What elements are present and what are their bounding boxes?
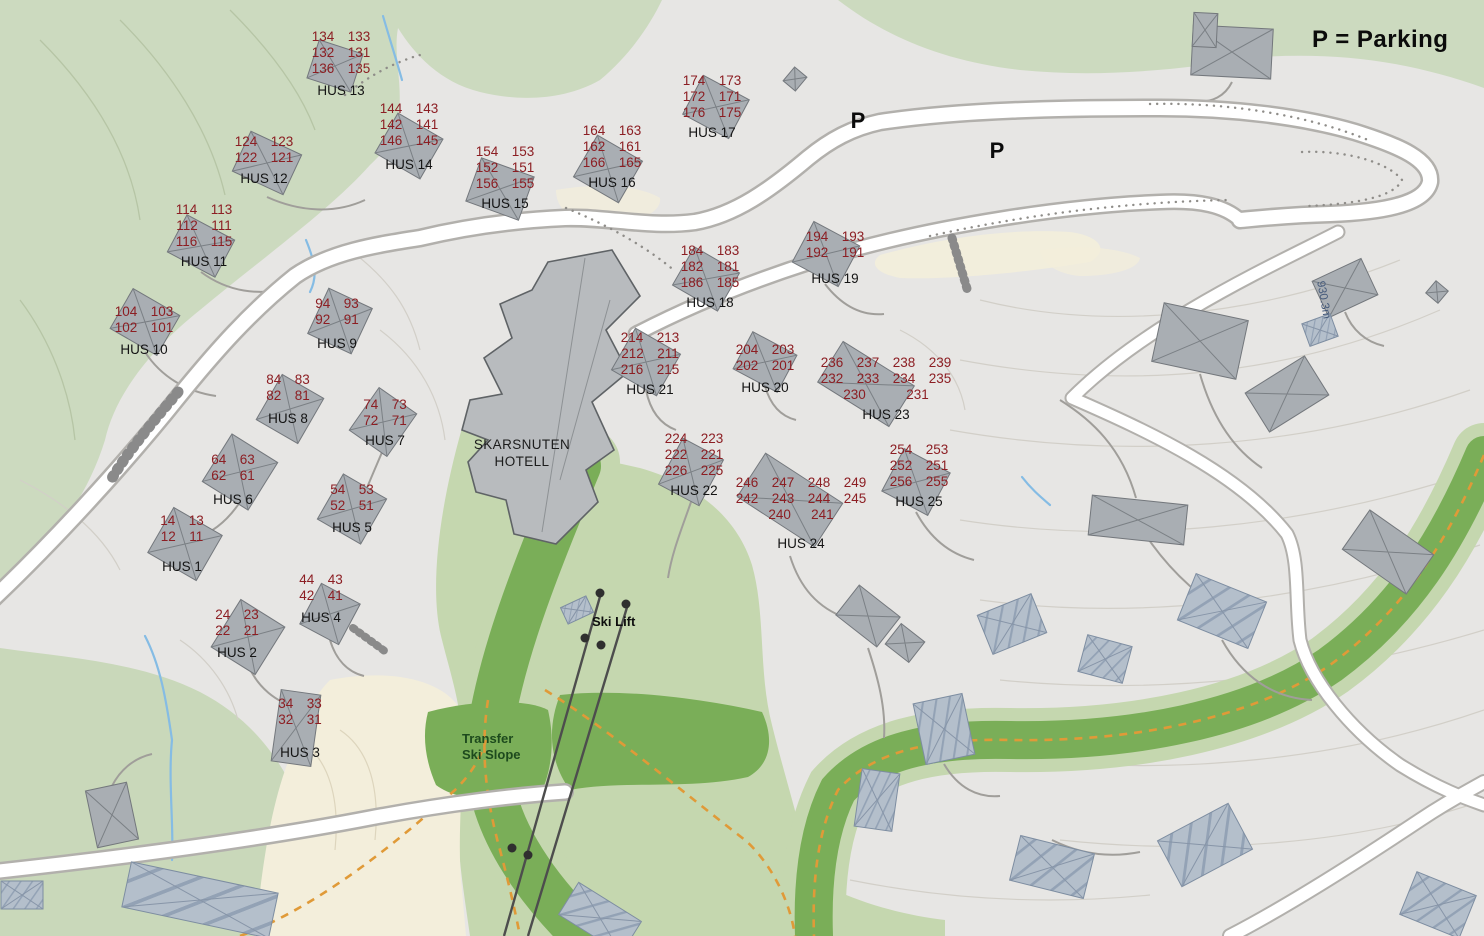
hus-label: HUS 12	[235, 171, 294, 186]
unit-numbers: 134 133 132 131 136 135	[312, 29, 371, 77]
hus-label: HUS 11	[176, 254, 233, 269]
hus-label: HUS 21	[621, 382, 680, 397]
unit-numbers: 124 123 122 121	[235, 134, 294, 166]
house-cluster-hus-13: 134 133 132 131 136 135 HUS 13	[312, 29, 371, 98]
hus-label: HUS 19	[806, 271, 865, 286]
unit-numbers: 114 113 112 111 116 115	[176, 202, 233, 250]
unit-numbers: 174 173 172 171 176 175	[683, 73, 742, 121]
house-cluster-hus-22: 224 223 222 221 226 225 HUS 22	[665, 431, 724, 498]
hus-label: HUS 5	[330, 520, 374, 535]
unit-numbers: 184 183 182 181 186 185	[681, 243, 740, 291]
parking-marker: P	[990, 138, 1005, 164]
house-cluster-hus-2: 24 23 22 21 HUS 2	[215, 607, 259, 660]
house-cluster-hus-9: 94 93 92 91 HUS 9	[315, 296, 359, 351]
unit-numbers: 54 53 52 51	[330, 482, 374, 514]
hus-label: HUS 25	[890, 494, 949, 509]
hus-label: HUS 9	[315, 336, 359, 351]
unit-numbers: 94 93 92 91	[315, 296, 359, 328]
hus-label: HUS 3	[278, 745, 322, 760]
house-cluster-hus-24: 246 247 248 249 242 243 244 245 240 241 …	[736, 475, 867, 551]
house-cluster-hus-12: 124 123 122 121 HUS 12	[235, 134, 294, 186]
hus-label: HUS 2	[215, 645, 259, 660]
unit-numbers: 74 73 72 71	[363, 397, 407, 429]
house-cluster-hus-16: 164 163 162 161 166 165 HUS 16	[583, 123, 642, 190]
house-cluster-hus-14: 144 143 142 141 146 145 HUS 14	[380, 101, 439, 172]
hus-label: HUS 22	[665, 483, 724, 498]
hus-label: HUS 10	[115, 342, 174, 357]
unit-numbers: 254 253 252 251 256 255	[890, 442, 949, 490]
hotel-label: SKARSNUTEN HOTELL	[474, 437, 570, 470]
label-overlay: P = Parking SKARSNUTEN HOTELL Ski Lift T…	[0, 0, 1484, 936]
unit-numbers: 164 163 162 161 166 165	[583, 123, 642, 171]
house-cluster-hus-17: 174 173 172 171 176 175 HUS 17	[683, 73, 742, 140]
unit-numbers: 246 247 248 249 242 243 244 245 240 241	[736, 475, 867, 523]
hus-label: HUS 23	[821, 407, 952, 422]
hus-label: HUS 18	[681, 295, 740, 310]
house-cluster-hus-11: 114 113 112 111 116 115 HUS 11	[176, 202, 233, 269]
unit-numbers: 194 193 192 191	[806, 229, 865, 261]
house-cluster-hus-8: 84 83 82 81 HUS 8	[266, 372, 310, 426]
house-cluster-hus-21: 214 213 212 211 216 215 HUS 21	[621, 330, 680, 397]
unit-numbers: 224 223 222 221 226 225	[665, 431, 724, 479]
unit-numbers: 236 237 238 239 232 233 234 235 230 231	[821, 355, 952, 403]
transfer-ski-slope-label: Transfer Ski Slope	[462, 731, 521, 763]
hus-label: HUS 17	[683, 125, 742, 140]
hus-label: HUS 20	[736, 380, 795, 395]
house-cluster-hus-25: 254 253 252 251 256 255 HUS 25	[890, 442, 949, 509]
hus-label: HUS 1	[160, 559, 204, 574]
hus-label: HUS 14	[380, 157, 439, 172]
house-cluster-hus-23: 236 237 238 239 232 233 234 235 230 231 …	[821, 355, 952, 422]
house-cluster-hus-15: 154 153 152 151 156 155 HUS 15	[476, 144, 535, 211]
house-cluster-hus-3: 34 33 32 31 HUS 3	[278, 696, 322, 760]
house-cluster-hus-5: 54 53 52 51 HUS 5	[330, 482, 374, 535]
unit-numbers: 84 83 82 81	[266, 372, 310, 404]
hus-label: HUS 4	[299, 610, 343, 625]
unit-numbers: 104 103 102 101	[115, 304, 174, 336]
hus-label: HUS 13	[312, 83, 371, 98]
hus-label: HUS 6	[211, 492, 255, 507]
hus-label: HUS 7	[363, 433, 407, 448]
parking-marker: P	[851, 108, 866, 134]
unit-numbers: 204 203 202 201	[736, 342, 795, 374]
hus-label: HUS 15	[476, 196, 535, 211]
unit-numbers: 154 153 152 151 156 155	[476, 144, 535, 192]
hus-label: HUS 8	[266, 411, 310, 426]
house-cluster-hus-4: 44 43 42 41 HUS 4	[299, 572, 343, 625]
unit-numbers: 24 23 22 21	[215, 607, 259, 639]
hus-label: HUS 24	[736, 536, 867, 551]
parking-legend: P = Parking	[1312, 26, 1448, 54]
house-cluster-hus-7: 74 73 72 71 HUS 7	[363, 397, 407, 448]
hus-label: HUS 16	[583, 175, 642, 190]
resort-map: P = Parking SKARSNUTEN HOTELL Ski Lift T…	[0, 0, 1484, 936]
unit-numbers: 144 143 142 141 146 145	[380, 101, 439, 149]
house-cluster-hus-10: 104 103 102 101 HUS 10	[115, 304, 174, 357]
unit-numbers: 214 213 212 211 216 215	[621, 330, 680, 378]
unit-numbers: 34 33 32 31	[278, 696, 322, 728]
unit-numbers: 64 63 62 61	[211, 452, 255, 484]
elevation-label: 930.3m	[1314, 280, 1332, 320]
house-cluster-hus-18: 184 183 182 181 186 185 HUS 18	[681, 243, 740, 310]
house-cluster-hus-6: 64 63 62 61 HUS 6	[211, 452, 255, 507]
house-cluster-hus-20: 204 203 202 201 HUS 20	[736, 342, 795, 395]
unit-numbers: 44 43 42 41	[299, 572, 343, 604]
ski-lift-label: Ski Lift	[592, 614, 635, 629]
house-cluster-hus-1: 14 13 12 11 HUS 1	[160, 513, 204, 574]
house-cluster-hus-19: 194 193 192 191 HUS 19	[806, 229, 865, 286]
unit-numbers: 14 13 12 11	[160, 513, 204, 545]
